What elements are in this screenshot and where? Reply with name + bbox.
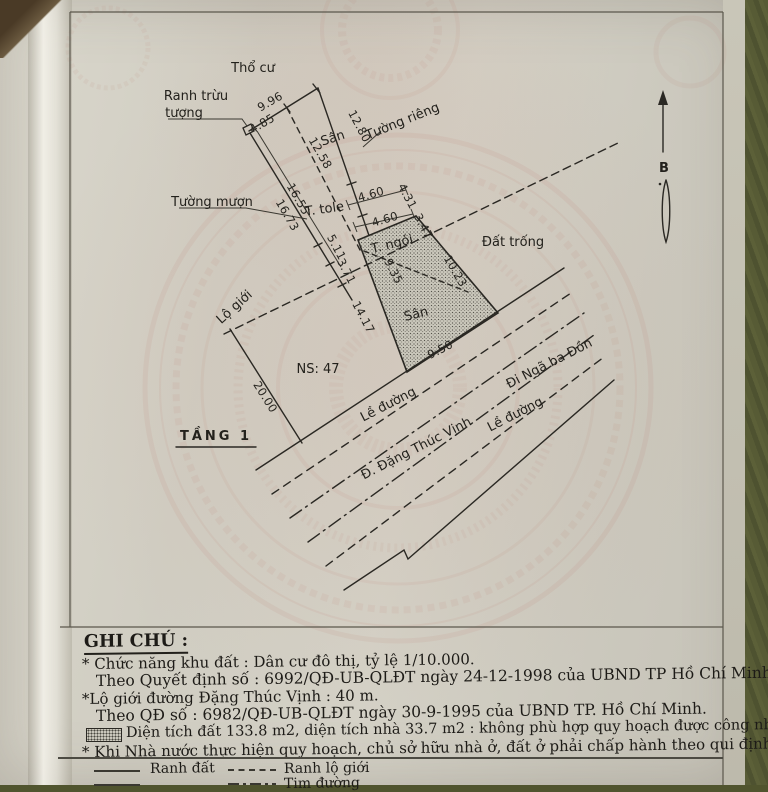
dim-4-85: 4.85 bbox=[247, 111, 277, 137]
notes-divider bbox=[58, 757, 723, 759]
legend-label-ranh-dat: Ranh đất bbox=[150, 760, 215, 777]
legend-solid-line-sample-2 bbox=[94, 784, 140, 786]
dim-14-17: 14.17 bbox=[349, 299, 378, 336]
label-tuong-muon: Tường mượn bbox=[170, 195, 253, 210]
label-tho-cu: Thổ cư bbox=[230, 61, 275, 76]
legend-dashed-line-sample bbox=[228, 769, 276, 771]
label-ranh-truu-2: tượng bbox=[165, 106, 203, 121]
north-label: B bbox=[659, 161, 669, 176]
legend-solid-line-sample bbox=[94, 770, 140, 772]
legend-label-tim-duong: Tim đường bbox=[284, 775, 360, 792]
scanned-survey-document: B bbox=[0, 0, 768, 785]
north-arrow: B bbox=[658, 90, 670, 242]
label-ranh-truu-1: Ranh trừu bbox=[164, 89, 228, 104]
floor-title: TẦNG 1 bbox=[180, 426, 252, 444]
dim-3-71: 3.71 bbox=[334, 256, 359, 286]
label-ns-47: NS: 47 bbox=[296, 362, 339, 377]
dim-4-31: 4.31 bbox=[395, 181, 420, 211]
north-needle bbox=[662, 180, 670, 242]
label-dat-trong: Đất trống bbox=[482, 235, 544, 250]
dim-9-96: 9.96 bbox=[255, 89, 285, 115]
dim-20-00: 20.00 bbox=[250, 379, 280, 416]
label-le-duong-1: Lề đường bbox=[358, 385, 419, 426]
north-arrow-head bbox=[658, 90, 668, 105]
hatch-swatch-icon bbox=[86, 728, 122, 742]
notes-heading: GHI CHÚ : bbox=[84, 631, 188, 655]
dim-4-60-a: 4.60 bbox=[356, 184, 386, 205]
label-street-name: Đ. Đặng Thúc Vịnh bbox=[359, 415, 474, 484]
